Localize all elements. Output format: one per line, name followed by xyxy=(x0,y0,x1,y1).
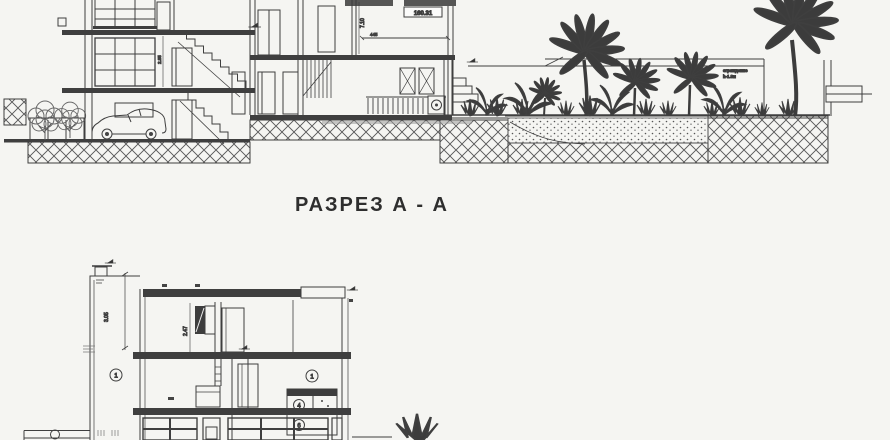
bottom-building: 2.47 1 4 6 xyxy=(133,284,358,440)
dim-3-05: 3.05 xyxy=(104,312,110,322)
car xyxy=(92,109,166,139)
middle-building: 160.31 445 7.10 2.85 xyxy=(157,0,472,124)
architectural-section-drawing: 160.31 445 7.10 2.85 xyxy=(0,0,890,440)
dim-2-47: 2.47 xyxy=(183,326,189,336)
fence-label-line1: ограждение xyxy=(723,68,748,73)
section-title: РАЗРЕЗ А - А xyxy=(295,194,449,216)
callout-1-right: 1 xyxy=(310,374,314,381)
callout-1-left: 1 xyxy=(114,373,118,380)
scanned-drawing-sheet: 160.31 445 7.10 2.85 xyxy=(0,0,890,440)
palm-trees xyxy=(529,0,839,116)
left-garden xyxy=(28,101,86,140)
pool xyxy=(505,116,710,144)
deciduous-tree xyxy=(28,101,62,140)
dim-7-10: 7.10 xyxy=(360,18,366,28)
dim-445: 445 xyxy=(370,32,378,37)
illegible-note-smudge xyxy=(322,121,472,124)
ground-floor-windows xyxy=(143,418,342,440)
deciduous-tree xyxy=(54,102,85,138)
bottom-section-drawing: 3.05 1 2.47 xyxy=(24,260,438,440)
top-section-drawing: 160.31 445 7.10 2.85 xyxy=(4,0,872,163)
dim-2-85: 2.85 xyxy=(157,55,162,64)
left-parapet: 3.05 1 xyxy=(83,260,140,440)
elevation-mark-text: 160.31 xyxy=(414,11,433,17)
agave-plant xyxy=(396,414,437,440)
left-building xyxy=(58,0,261,144)
fence-label-line2: h-1.8м xyxy=(723,74,736,79)
